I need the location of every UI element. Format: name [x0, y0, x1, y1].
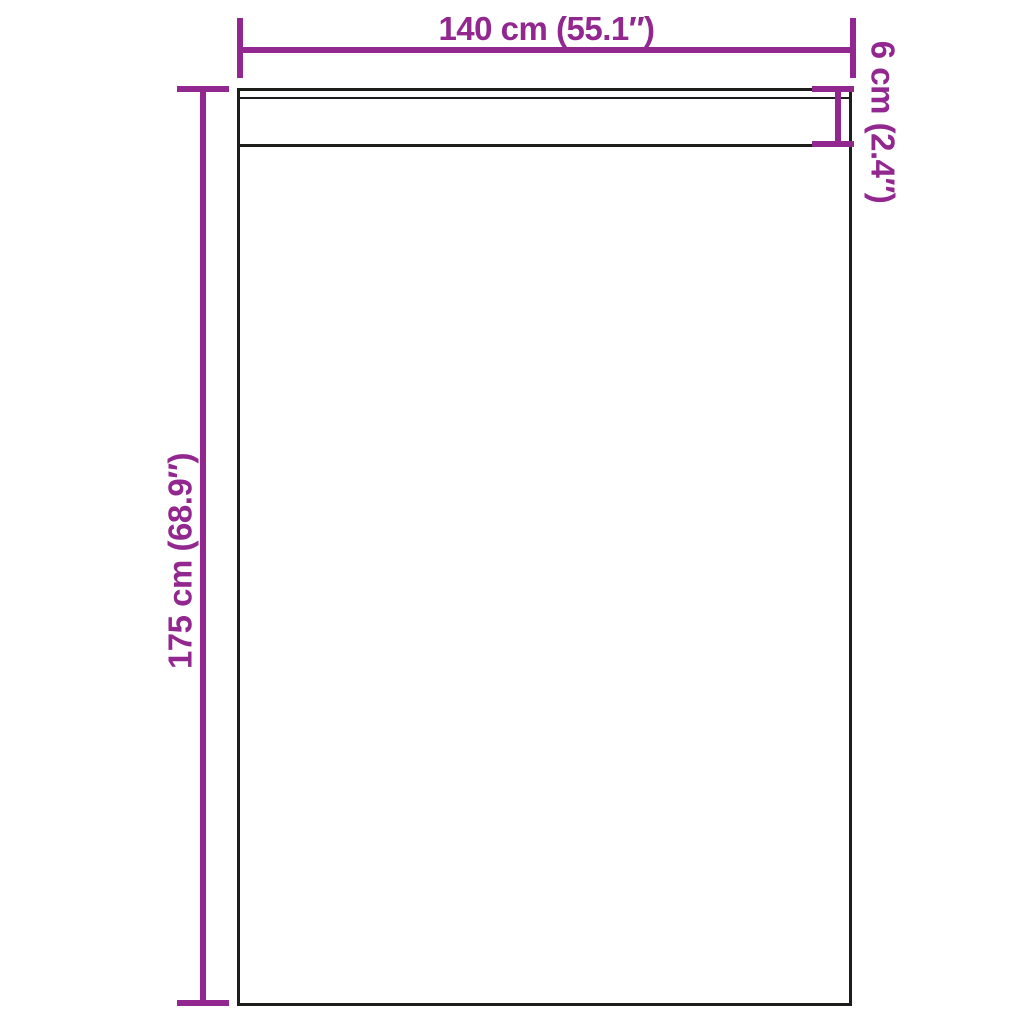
product-dimension-diagram: 140 cm (55.1″) 175 cm (68.9″) 6 cm (2.4″…: [0, 0, 1024, 1024]
header-seam-line: [240, 144, 849, 147]
header-height-dimension-tick-bottom: [812, 141, 854, 147]
header-height-dimension-line: [835, 88, 841, 146]
curtain-panel-outline: [237, 88, 852, 1006]
height-dimension-tick-top: [177, 86, 229, 92]
width-dimension-line: [237, 47, 856, 53]
height-dimension-label: 175 cm (68.9″): [164, 453, 197, 669]
height-dimension-line: [200, 86, 206, 1006]
height-dimension-tick-bottom: [177, 1000, 229, 1006]
width-dimension-label: 140 cm (55.1″): [237, 12, 856, 45]
top-hem-line: [240, 97, 849, 99]
header-height-dimension-label: 6 cm (2.4″): [867, 41, 900, 204]
header-height-dimension-tick-top: [812, 86, 854, 92]
